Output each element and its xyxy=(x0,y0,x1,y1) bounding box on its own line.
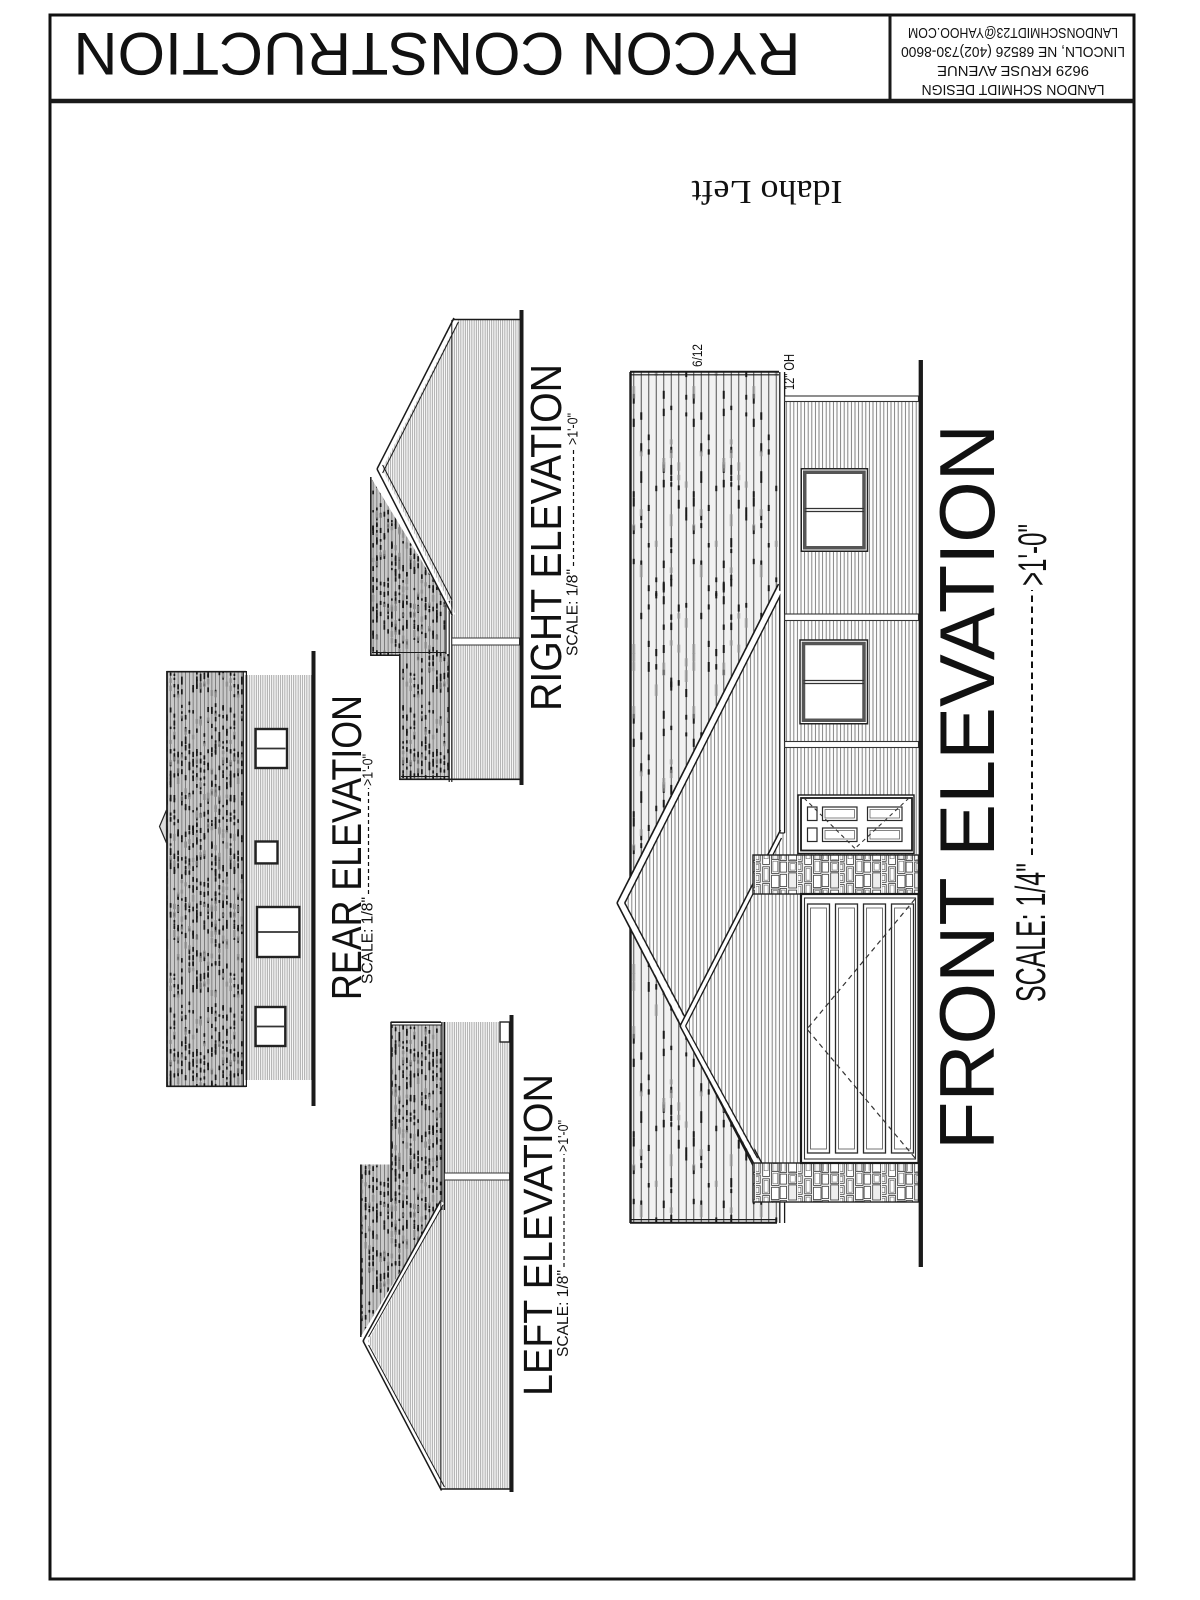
svg-text:SCALE: 1/8": SCALE: 1/8" xyxy=(565,569,582,656)
svg-text:6/12: 6/12 xyxy=(690,344,705,367)
svg-text:LANDON SCHMIDT DESIGN: LANDON SCHMIDT DESIGN xyxy=(922,81,1105,97)
svg-text:SCALE: 1/4": SCALE: 1/4" xyxy=(1007,863,1054,1002)
svg-text:Idaho Left: Idaho Left xyxy=(691,173,843,210)
svg-text:FRONT ELEVATION: FRONT ELEVATION xyxy=(923,424,1011,1150)
svg-text:SCALE: 1/8": SCALE: 1/8" xyxy=(360,897,377,984)
svg-text:RYCON CONSTRUCTION: RYCON CONSTRUCTION xyxy=(74,20,801,87)
svg-text:12" OH: 12" OH xyxy=(781,354,798,390)
svg-text:>1'-0": >1'-0" xyxy=(556,1120,572,1152)
svg-text:RIGHT ELEVATION: RIGHT ELEVATION xyxy=(522,364,571,711)
svg-text:>1'-0": >1'-0" xyxy=(361,754,377,786)
svg-text:9629 KRUSE AVENUE: 9629 KRUSE AVENUE xyxy=(937,62,1089,78)
svg-text:LINCOLN, NE 68526 (402)730-860: LINCOLN, NE 68526 (402)730-8600 xyxy=(901,43,1125,59)
svg-text:LANDONSCHMIDT23@YAHOO.COM: LANDONSCHMIDT23@YAHOO.COM xyxy=(908,24,1118,40)
svg-text:>1'-0": >1'-0" xyxy=(566,413,582,445)
svg-text:SCALE: 1/8": SCALE: 1/8" xyxy=(555,1270,572,1357)
svg-text:>1'-0": >1'-0" xyxy=(1011,524,1055,586)
